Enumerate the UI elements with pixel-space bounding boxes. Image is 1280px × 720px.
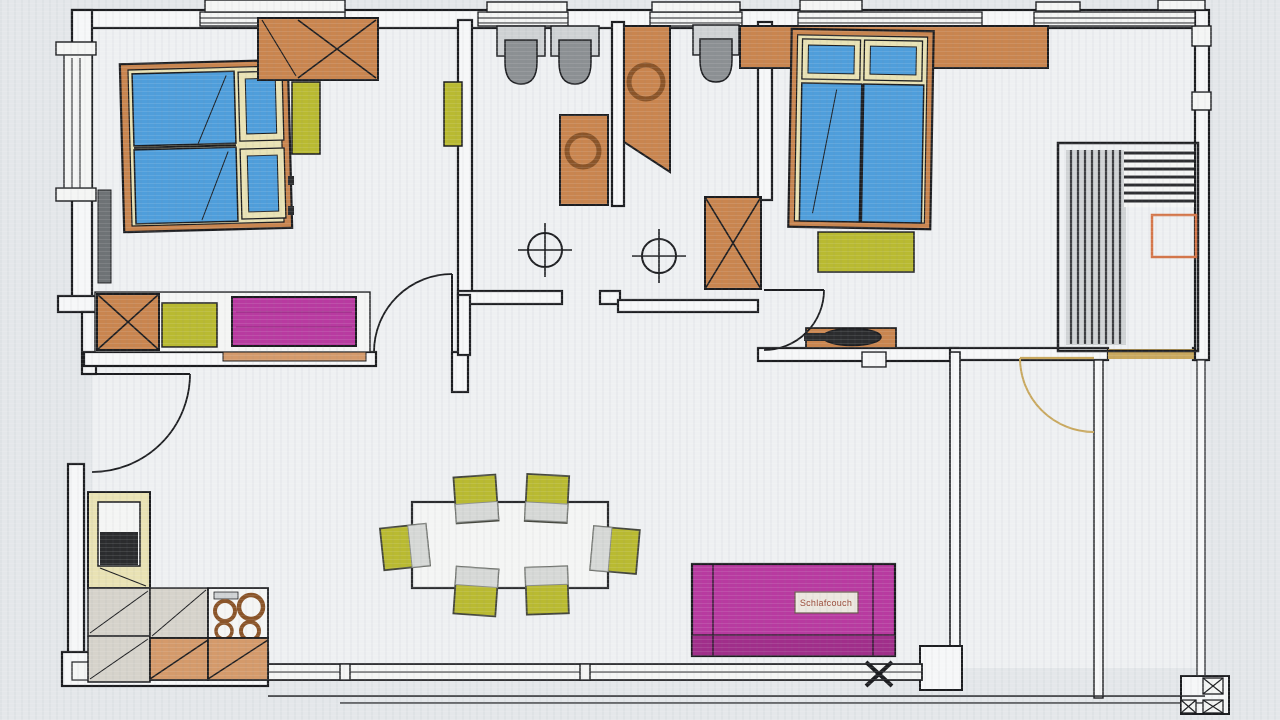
- floorplan: Schlafcouch: [0, 0, 1280, 720]
- window-north-5: [1034, 12, 1195, 26]
- wall-hall-post: [452, 352, 468, 392]
- bed1-duvet-a: [132, 71, 236, 146]
- bed1-pillow-b-core: [247, 155, 278, 212]
- wall-right-tick-b: [1192, 92, 1211, 110]
- closet-rail-bg: [1066, 150, 1126, 345]
- wall-left-lower: [68, 464, 84, 662]
- chair-top-b-seat: [525, 502, 568, 522]
- stove-flue-box: [862, 352, 886, 367]
- dining-table: [412, 502, 608, 588]
- wall-left-jog: [58, 296, 96, 312]
- socket-a: [288, 176, 294, 185]
- bed2-duvet-b: [861, 84, 923, 223]
- bed2-pillow-b-core: [870, 46, 916, 75]
- wall-bath1-west: [458, 20, 472, 295]
- wall-bedroom1-east-low: [458, 295, 470, 355]
- wall-bath2-south: [618, 300, 758, 312]
- wall-right-lower: [1197, 360, 1205, 678]
- stove-plate: [823, 329, 881, 346]
- kitchen-sink-basin: [100, 532, 138, 565]
- chair-right-seat: [590, 526, 612, 571]
- window-sill-5: [1036, 2, 1080, 11]
- kitchen-knob-strip: [214, 592, 238, 599]
- rug-bedroom2: [818, 232, 914, 272]
- shelf-bedroom1-east: [444, 82, 462, 146]
- toilet-c-bowl: [700, 39, 732, 82]
- window-west-sill-top: [56, 42, 96, 55]
- chair-bottom-b-seat: [525, 566, 568, 585]
- window-sill-3: [652, 2, 740, 12]
- bench-wood-strip: [223, 352, 366, 361]
- bench-magenta: [232, 297, 356, 346]
- window-north-2: [478, 12, 568, 26]
- column-terrace: [920, 646, 962, 690]
- radiator-west: [98, 190, 111, 283]
- window-sill-6: [1158, 0, 1205, 10]
- toilet-b-bowl: [559, 40, 591, 84]
- window-west-sill-bottom: [56, 188, 96, 201]
- chair-top-a-seat: [455, 502, 498, 523]
- bed2-duvet-a: [799, 83, 861, 222]
- socket-b: [288, 206, 294, 215]
- stove-handle: [804, 333, 828, 341]
- wall-bath-divider: [612, 22, 624, 206]
- chair-left-seat: [408, 524, 430, 568]
- bed2-pillow-a-core: [808, 45, 854, 74]
- wall-living-terrace: [950, 352, 960, 652]
- sofa-front-band: [692, 635, 895, 656]
- window-south-tick-b: [580, 664, 590, 680]
- window-north-4: [798, 12, 982, 26]
- window-south-tick-a: [340, 664, 350, 680]
- olive-box-bedroom1: [162, 303, 217, 347]
- wall-terrace-storage: [1094, 360, 1103, 698]
- wall-right-tick-a: [1192, 26, 1211, 46]
- window-sill-1: [205, 0, 345, 12]
- wall-bath1-south-a: [458, 291, 562, 304]
- toilet-a-bowl: [505, 40, 537, 84]
- chair-bottom-a-seat: [455, 567, 498, 588]
- bed1-duvet-b: [134, 147, 238, 224]
- window-sill-2: [487, 2, 567, 12]
- bed1-pillow-a-core: [245, 78, 276, 134]
- floorplan-svg: Schlafcouch: [0, 0, 1280, 720]
- window-sill-4: [800, 0, 862, 11]
- window-north-3: [650, 12, 742, 26]
- window-west: [64, 54, 92, 190]
- wardrobe-bedroom1: [258, 18, 378, 80]
- sofa-label: Schlafcouch: [800, 598, 852, 608]
- nightstand-bedroom1: [292, 82, 320, 154]
- wall-living-north: [758, 348, 958, 361]
